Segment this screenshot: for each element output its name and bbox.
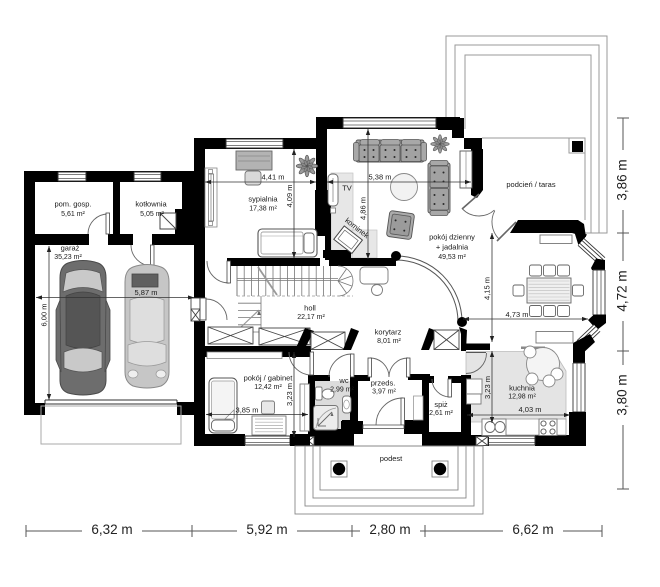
svg-text:4,41 m: 4,41 m	[262, 173, 285, 182]
svg-text:3,97 m²: 3,97 m²	[372, 389, 396, 396]
svg-text:4,72 m: 4,72 m	[615, 270, 630, 311]
svg-text:12,98 m²: 12,98 m²	[508, 394, 536, 401]
svg-text:5,61 m²: 5,61 m²	[61, 211, 85, 218]
svg-text:garaż: garaż	[61, 244, 80, 253]
svg-text:przeds.: przeds.	[371, 379, 396, 388]
svg-text:TV: TV	[342, 184, 352, 193]
svg-text:49,53 m²: 49,53 m²	[438, 254, 466, 261]
svg-text:2,99 m²: 2,99 m²	[330, 387, 354, 394]
svg-text:6,00 m: 6,00 m	[40, 304, 49, 327]
svg-text:3,80 m: 3,80 m	[615, 374, 630, 415]
svg-text:kotłownia: kotłownia	[135, 200, 167, 209]
svg-text:4,73 m: 4,73 m	[506, 310, 529, 319]
svg-text:korytarz: korytarz	[375, 328, 402, 337]
svg-text:spiż: spiż	[434, 400, 448, 409]
svg-text:pokój dzienny: pokój dzienny	[429, 233, 475, 242]
svg-text:holl: holl	[304, 304, 316, 313]
svg-text:2,80 m: 2,80 m	[369, 522, 410, 537]
svg-text:3,85 m: 3,85 m	[236, 406, 259, 415]
svg-text:35,23 m²: 35,23 m²	[54, 254, 82, 261]
svg-text:2,61 m²: 2,61 m²	[429, 410, 453, 417]
svg-text:17,38 m²: 17,38 m²	[249, 206, 277, 213]
svg-text:kuchnia: kuchnia	[509, 384, 536, 393]
svg-text:pom. gosp.: pom. gosp.	[54, 200, 91, 209]
svg-text:6,62 m: 6,62 m	[512, 522, 553, 537]
svg-text:sypialnia: sypialnia	[248, 195, 278, 204]
svg-text:3,23 m: 3,23 m	[483, 376, 492, 399]
svg-text:6,32 m: 6,32 m	[91, 522, 132, 537]
svg-text:wc: wc	[338, 376, 348, 385]
svg-text:4,03 m: 4,03 m	[519, 405, 542, 414]
svg-text:pokój / gabinet: pokój / gabinet	[244, 374, 294, 383]
svg-text:podest: podest	[380, 454, 403, 463]
svg-text:4,86 m: 4,86 m	[359, 197, 368, 220]
svg-text:5,05 m²: 5,05 m²	[140, 211, 164, 218]
svg-text:5,38 m: 5,38 m	[369, 173, 392, 182]
svg-text:4,15 m: 4,15 m	[483, 277, 492, 300]
svg-text:12,42 m²: 12,42 m²	[254, 384, 282, 391]
svg-text:3,23 m: 3,23 m	[285, 383, 294, 406]
svg-text:5,92 m: 5,92 m	[246, 522, 287, 537]
svg-text:podcień / taras: podcień / taras	[506, 180, 555, 189]
svg-text:+ jadalnia: + jadalnia	[436, 243, 469, 252]
svg-text:4,09 m: 4,09 m	[285, 185, 294, 208]
svg-text:22,17 m²: 22,17 m²	[297, 314, 325, 321]
svg-text:3,86 m: 3,86 m	[615, 159, 630, 200]
svg-text:5,87 m: 5,87 m	[135, 288, 158, 297]
svg-text:8,01 m²: 8,01 m²	[377, 338, 401, 345]
